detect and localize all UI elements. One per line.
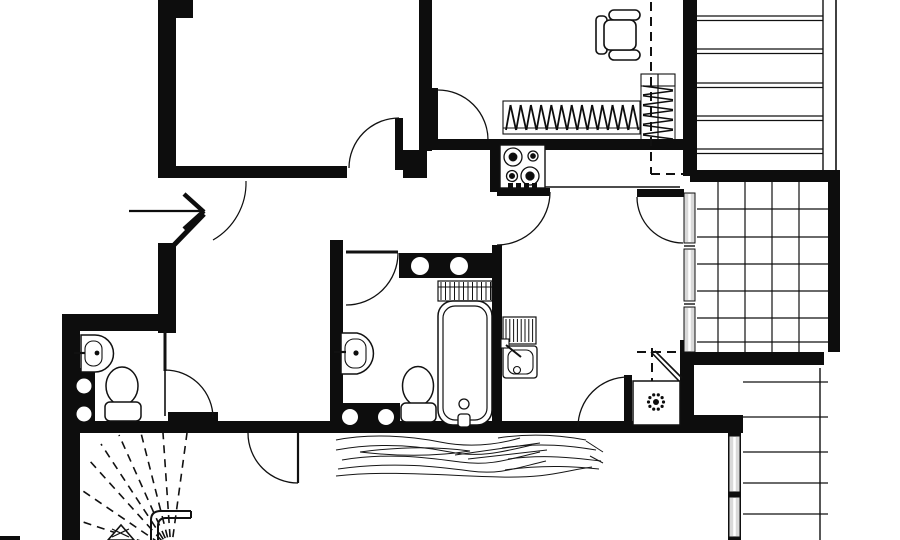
wall-terrace-left — [683, 0, 697, 176]
wall-terrace-bottom — [683, 352, 824, 365]
office-chair-icon — [596, 10, 640, 60]
wall-bottom-left-sliver — [0, 536, 20, 540]
wall-terrace-right — [828, 170, 840, 352]
pipe-icon — [77, 379, 92, 394]
pipe-icon — [411, 257, 429, 275]
door-leaf-room1 — [395, 118, 403, 170]
radiator-horizontal — [503, 101, 640, 134]
pipe-icon — [342, 409, 358, 425]
dashed-overhead-lines — [637, 2, 683, 423]
wall-hall-top-left — [176, 166, 347, 178]
wall-kitchen-top — [419, 139, 683, 150]
wood-floor-texture — [336, 435, 603, 477]
lower-right-window — [729, 436, 740, 537]
wc-plumbing-duct — [62, 368, 95, 430]
door-leaf-terrace — [637, 189, 684, 197]
arrow-head — [184, 194, 204, 212]
entry-door-leaf — [173, 214, 204, 246]
sink-drain — [514, 367, 521, 374]
door-arc-lower-room — [578, 377, 628, 427]
door-arc-room1 — [349, 118, 399, 168]
wall-top-left-notch — [158, 0, 193, 18]
door-arc-room2 — [438, 90, 488, 140]
pipe-icon — [378, 409, 394, 425]
terrace-tile-grid — [697, 182, 828, 352]
toilet-bowl-icon — [106, 367, 138, 405]
pipe-icon — [450, 257, 468, 275]
wall-terrace-top — [690, 170, 837, 182]
stair-handrail — [151, 511, 191, 540]
wall-wc-door-sill — [168, 412, 218, 432]
floor-plan-page — [0, 0, 900, 540]
door-arc-bathroom — [346, 253, 398, 305]
cabinet-chamfer — [651, 351, 682, 381]
entry-door-arc — [213, 181, 246, 240]
door-arc-stairs — [248, 433, 298, 483]
door-leaf-lower-room — [624, 375, 632, 428]
kitchen-fixtures — [500, 145, 680, 425]
wall-step — [403, 150, 427, 178]
terrace-glazing — [684, 193, 695, 352]
stair-steps-dashed — [80, 433, 187, 540]
tub-drain — [459, 399, 469, 409]
plank-lines-bottom-right — [743, 382, 828, 514]
entrance-arrow — [129, 181, 246, 246]
plank-lines-top-right — [697, 16, 823, 154]
pipe-icon — [77, 407, 92, 422]
toilet-tank — [105, 402, 141, 421]
door-leaf-kitchen — [497, 188, 550, 196]
door-arc-wc — [165, 370, 213, 418]
door-arc-terrace — [637, 197, 683, 243]
door-arc-kitchen — [497, 192, 550, 245]
towel-radiator — [438, 281, 492, 301]
door-leaf-room2 — [430, 88, 438, 140]
stairwell — [80, 433, 191, 540]
tub-faucet — [458, 414, 470, 427]
sink-drain — [95, 351, 100, 356]
radiator-vertical — [641, 74, 675, 140]
wall-left-upper — [158, 17, 176, 178]
floor-plan-drawing — [0, 0, 900, 540]
sink-drain — [353, 350, 358, 355]
toilet-bowl-icon — [403, 367, 434, 406]
toilet-tank — [401, 403, 436, 422]
